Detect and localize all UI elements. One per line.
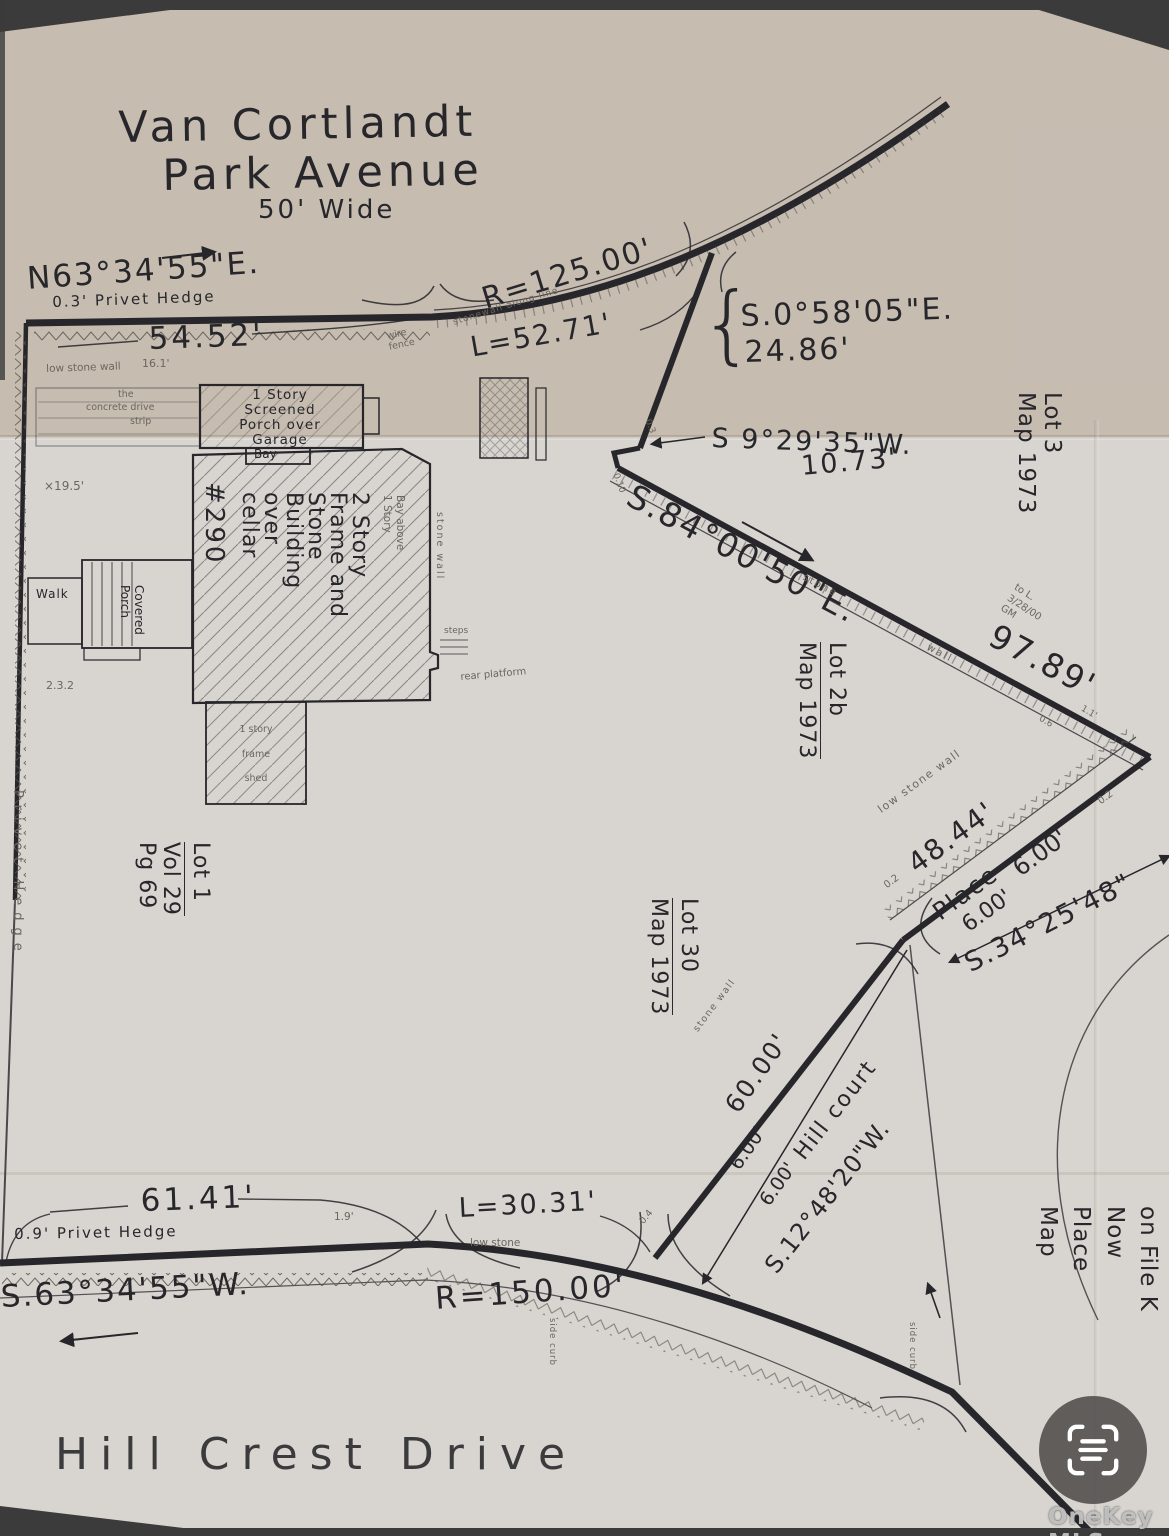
walk-label: Walk bbox=[36, 588, 69, 601]
main-house-label: 2 StoryFrame andStone Buildingovercellar bbox=[238, 492, 370, 618]
drive-note-1: the bbox=[118, 390, 134, 401]
neighbor-wall bbox=[536, 388, 546, 460]
dim-232: 2.3.2 bbox=[46, 680, 74, 692]
dim-bottom: 61.41' bbox=[140, 1180, 256, 1219]
scan-frame-icon bbox=[1064, 1421, 1122, 1479]
lot30-label: Lot 30Map 1973 bbox=[646, 898, 700, 1015]
photo-edge-top bbox=[0, 0, 1169, 10]
bay-label: Bay bbox=[254, 448, 277, 461]
offset-bottom: 1.9' bbox=[334, 1212, 354, 1224]
hedge-bottom-label: 0.9' Privet Hedge bbox=[14, 1223, 178, 1243]
house-side-wall-label: stone wall bbox=[433, 512, 444, 580]
street-width-note: 50' Wide bbox=[258, 196, 395, 225]
curb-note-2: side curb bbox=[906, 1322, 916, 1370]
house-number: #290 bbox=[199, 482, 228, 565]
dim-195: ×19.5' bbox=[44, 480, 84, 493]
dist-east1: 24.86' bbox=[744, 332, 851, 369]
hedge-left-label: Privet Hedge bbox=[9, 790, 24, 958]
wall-bottom-label: low stone bbox=[470, 1238, 520, 1250]
shed-label: 1 storyframeshed bbox=[224, 718, 288, 792]
drive-note-2: concrete drive bbox=[86, 403, 154, 414]
porch-steps bbox=[84, 648, 140, 660]
garage-label: 1 StoryScreened Porch overGarage bbox=[222, 388, 338, 448]
bay-above-label: Bay above1 Story bbox=[381, 495, 406, 550]
lot1-label: Lot 1Vol 29Pg 69 bbox=[133, 842, 212, 916]
neighbor-structure bbox=[480, 378, 528, 458]
survey-photo: Van Cortlandt Park Avenue 50' Wide N63°3… bbox=[0, 0, 1169, 1536]
bottom-street-name: Hill Crest Drive bbox=[55, 1430, 577, 1479]
steps-label: steps bbox=[444, 626, 468, 636]
dim-top: 54.52' bbox=[148, 318, 264, 357]
bearing-east1: S.0°58'05"E. bbox=[740, 293, 955, 334]
photo-corner-bottom-left bbox=[0, 1506, 200, 1530]
watermark-brand: OneKey MLS bbox=[1048, 1504, 1169, 1536]
curb-note-1: side curb bbox=[546, 1318, 556, 1366]
watermark-badge bbox=[1039, 1396, 1147, 1504]
photo-corner-top-right bbox=[1039, 10, 1169, 50]
garage-side-rect bbox=[363, 398, 379, 434]
file-note: on File KNow PlaceMap bbox=[1031, 1206, 1164, 1312]
dim-top2: 16.1' bbox=[142, 358, 170, 370]
title-line1: Van Cortlandt bbox=[118, 98, 478, 152]
title-line2: Park Avenue bbox=[162, 146, 484, 200]
boundary-east2 bbox=[614, 448, 640, 468]
rear-steps-lines bbox=[440, 640, 468, 654]
court-right-line bbox=[910, 945, 960, 1385]
drive-note-3: strip bbox=[130, 417, 151, 428]
photo-edge-left bbox=[0, 0, 5, 380]
lot3-label: Lot 3Map 1973 bbox=[1013, 392, 1065, 514]
lot2b-label: Lot 2bMap 1973 bbox=[794, 642, 848, 759]
photo-corner-top-left bbox=[0, 10, 170, 32]
covered-porch-label: CoveredPorch bbox=[117, 585, 146, 635]
